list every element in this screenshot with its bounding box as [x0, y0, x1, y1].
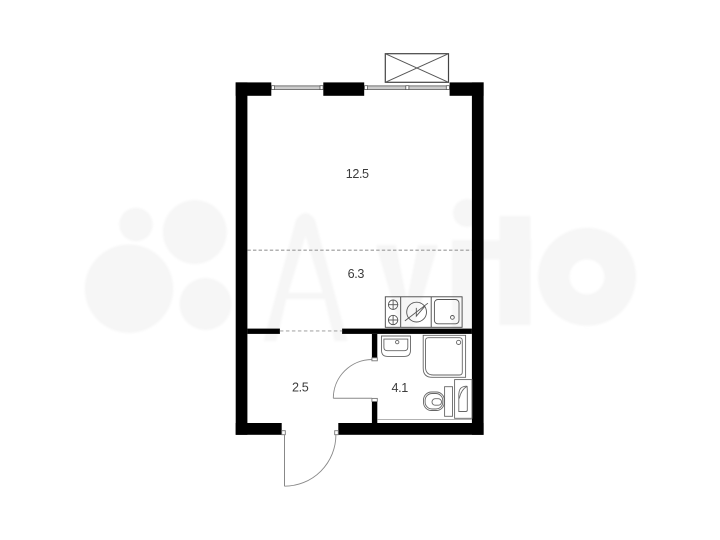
svg-text:12.5: 12.5 [346, 167, 369, 181]
svg-text:6.3: 6.3 [348, 267, 365, 281]
svg-text:2.5: 2.5 [292, 381, 309, 395]
svg-text:4.1: 4.1 [392, 381, 409, 395]
